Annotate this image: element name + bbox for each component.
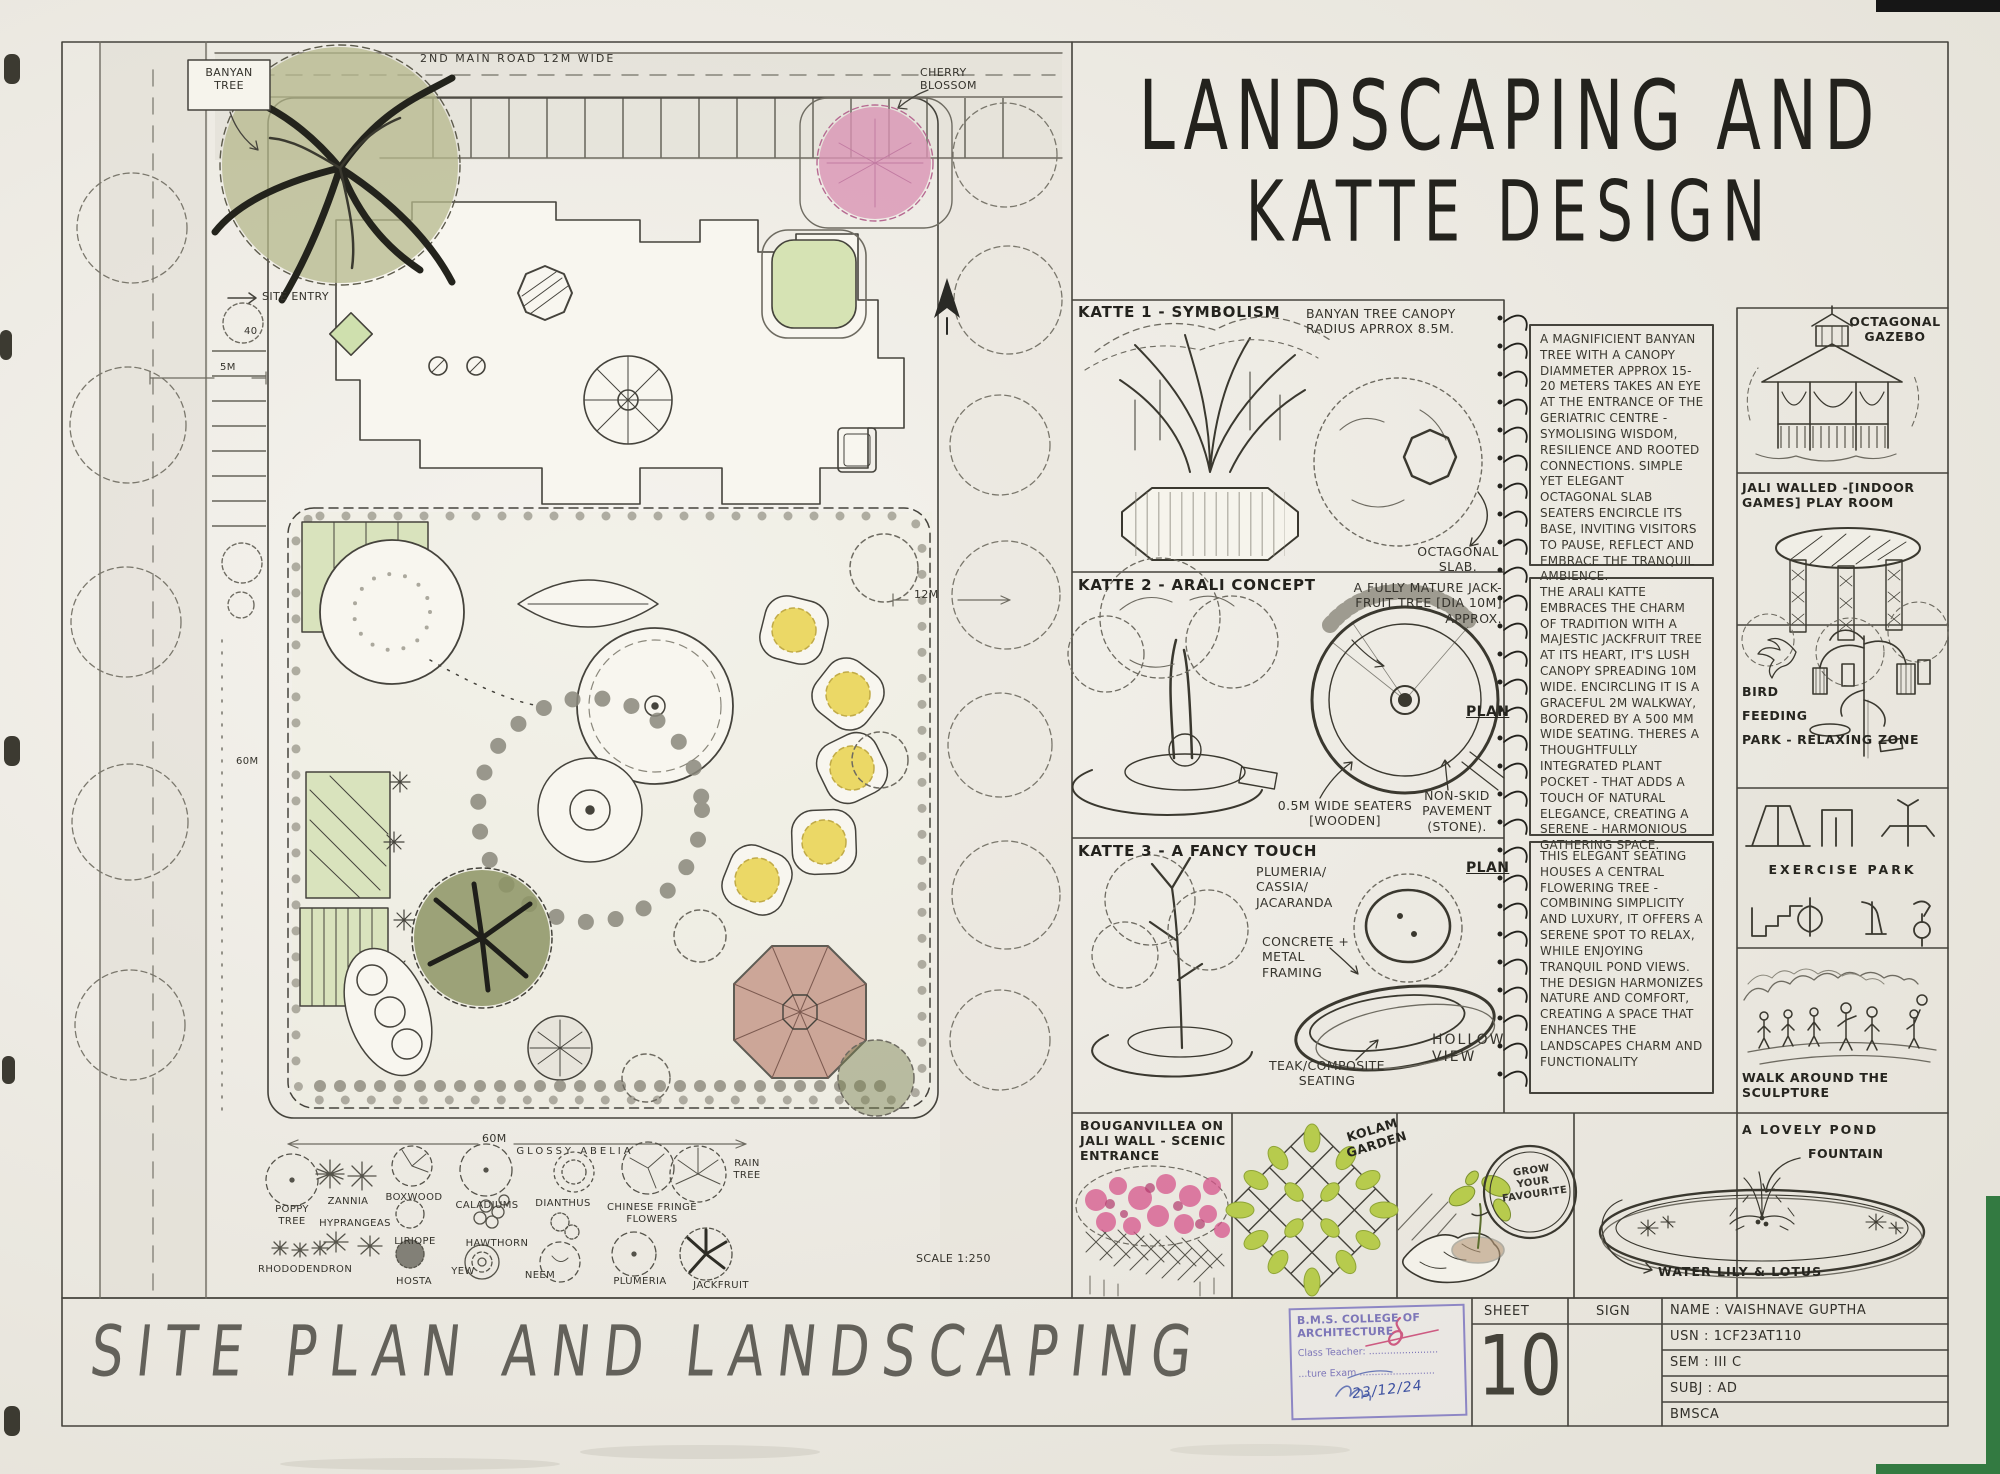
- bird-title-l4: ZONE: [1878, 732, 1919, 747]
- college-stamp: B.M.S. COLLEGE OF ARCHITECTURE Class Tea…: [1289, 1304, 1468, 1421]
- katte2-tree-note: A FULLY MATURE JACK-FRUIT TREE [DIA 10M]…: [1326, 580, 1502, 626]
- sheet-title-line1: LANDSCAPING AND: [1071, 62, 1948, 173]
- legend-dianthus: DIANTHUS: [528, 1198, 598, 1210]
- legend-caladiums: CALADIUMS: [448, 1200, 526, 1212]
- bird-title-l1: BIRD: [1742, 684, 1779, 699]
- walk-sculpture-sketch: [1744, 969, 1936, 1064]
- pond-sketch: [1600, 1158, 1924, 1278]
- dim-60m-bottom: 60M: [482, 1132, 507, 1145]
- pond-title: A LOVELY POND: [1742, 1122, 1878, 1137]
- legend-hydrangeas: HYPRANGEAS: [312, 1218, 398, 1230]
- dim-40: 40: [244, 326, 258, 338]
- walk-title: WALK AROUND THE SCULPTURE: [1742, 1070, 1912, 1100]
- legend-zannia: ZANNIA: [318, 1196, 378, 1208]
- katte3-seating-note: TEAK/COMPOSITE SEATING: [1252, 1058, 1402, 1089]
- legend-hosta: HOSTA: [390, 1276, 438, 1288]
- pond-fountain-label: FOUNTAIN: [1808, 1146, 1883, 1161]
- main-road-label: 2ND MAIN ROAD 12M WIDE: [420, 52, 740, 65]
- katte2-note: THE ARALI KATTE EMBRACES THE CHARM OF TR…: [1540, 585, 1704, 854]
- legend-chinese-fringe: CHINESE FRINGE FLOWERS: [596, 1202, 708, 1226]
- usn-field: USN : 1CF23AT110: [1670, 1329, 1802, 1344]
- site-entry-arrow: [228, 293, 256, 303]
- dim-5m: 5M: [220, 362, 236, 374]
- katte1-title: KATTE 1 - SYMBOLISM: [1078, 303, 1280, 321]
- katte3-framing-note: CONCRETE + METAL FRAMING: [1262, 934, 1366, 980]
- katte2-plan-label: PLAN: [1466, 704, 1509, 721]
- legend-jackfruit: JACKFRUIT: [680, 1280, 762, 1292]
- stamp-college-name: B.M.S. COLLEGE OF ARCHITECTURE: [1297, 1310, 1458, 1340]
- katte1-canopy-note: BANYAN TREE CANOPY RADIUS APRROX 8.5M.: [1306, 306, 1504, 337]
- exercise-title: EXERCISE PARK: [1737, 862, 1948, 877]
- katte3-title: KATTE 3 - A FANCY TOUCH: [1078, 842, 1317, 860]
- legend-rhododendron: RHODODENDRON: [258, 1264, 378, 1276]
- bouganvillea-title: BOUGANVILLEA ON JALI WALL - SCENIC ENTRA…: [1080, 1118, 1232, 1163]
- sign-label: SIGN: [1596, 1304, 1630, 1319]
- legend-yew: YEW: [444, 1266, 482, 1278]
- katte3-note: THIS ELEGANT SEATING HOUSES A CENTRAL FL…: [1540, 849, 1704, 1071]
- katte3-view-note: HOLLOW VIEW: [1432, 1032, 1502, 1066]
- legend-glossy-abelia: GLOSSY ABELIA: [510, 1146, 640, 1158]
- katte1-note: A MAGNIFICIENT BANYAN TREE WITH A CANOPY…: [1540, 332, 1704, 585]
- stamp-class-teacher-line: Class Teacher: .......................: [1298, 1344, 1458, 1359]
- sheet-title: LANDSCAPING AND KATTE DESIGN: [1080, 62, 1940, 230]
- legend-hawthorn: HAWTHORN: [460, 1238, 534, 1250]
- drawing-sheet: LANDSCAPING AND KATTE DESIGN BANYAN TREE…: [0, 0, 2000, 1474]
- bird-title-l3: PARK - RELAXING: [1742, 732, 1873, 747]
- sheet-label: SHEET: [1484, 1304, 1529, 1319]
- katte2-title: KATTE 2 - ARALI CONCEPT: [1078, 576, 1316, 594]
- playroom-title: JALI WALLED -[INDOOR GAMES] PLAY ROOM: [1742, 480, 1948, 510]
- pond-plants-label: WATER LILY & LOTUS: [1658, 1264, 1822, 1279]
- name-field: NAME : VAISHNAVE GUPTHA: [1670, 1303, 1866, 1318]
- bottom-sheet-title: SITE PLAN AND LANDSCAPING: [86, 1312, 1145, 1393]
- legend-neem: NEEM: [516, 1270, 564, 1282]
- dim-12m: 12M: [914, 588, 939, 601]
- legend-boxwood: BOXWOOD: [382, 1192, 446, 1204]
- bouganvillea-sketch: [1076, 1166, 1230, 1296]
- katte3-plan-label: PLAN: [1466, 860, 1509, 877]
- banyan-tree-label: BANYAN TREE: [190, 66, 268, 93]
- gazebo-title: OCTAGONAL GAZEBO: [1848, 314, 1942, 344]
- stamp-exam-line: ...ture Exam .........................: [1298, 1365, 1458, 1380]
- bird-title-l2: FEEDING: [1742, 708, 1808, 723]
- cherry-blossom-label: CHERRY BLOSSOM: [920, 66, 1000, 93]
- subj-field: SUBJ : AD: [1670, 1381, 1737, 1396]
- scale-note: SCALE 1:250: [916, 1252, 1036, 1265]
- legend-rain-tree: RAIN TREE: [720, 1158, 774, 1182]
- katte3-tree-note: PLUMERIA/ CASSIA/ JACARANDA: [1256, 864, 1376, 910]
- katte1-sketch: [1085, 317, 1487, 560]
- katte1-slab-note: OCTAGONAL SLAB.: [1412, 544, 1504, 575]
- sem-field: SEM : III C: [1670, 1355, 1742, 1370]
- legend-liriope: LIRIOPE: [386, 1236, 444, 1248]
- katte2-pavement-note: NON-SKID PAVEMENT (STONE).: [1408, 788, 1506, 834]
- sheet-title-line2: KATTE DESIGN: [1080, 162, 1940, 261]
- org-field: BMSCA: [1670, 1407, 1719, 1422]
- katte2-seaters-note: 0.5M WIDE SEATERS [WOODEN]: [1266, 798, 1424, 829]
- site-entry-label: SITE ENTRY: [262, 290, 329, 303]
- legend-plumeria: PLUMERIA: [602, 1276, 678, 1288]
- dim-60m-left: 60M: [236, 756, 259, 768]
- sheet-number: 10: [1472, 1318, 1568, 1414]
